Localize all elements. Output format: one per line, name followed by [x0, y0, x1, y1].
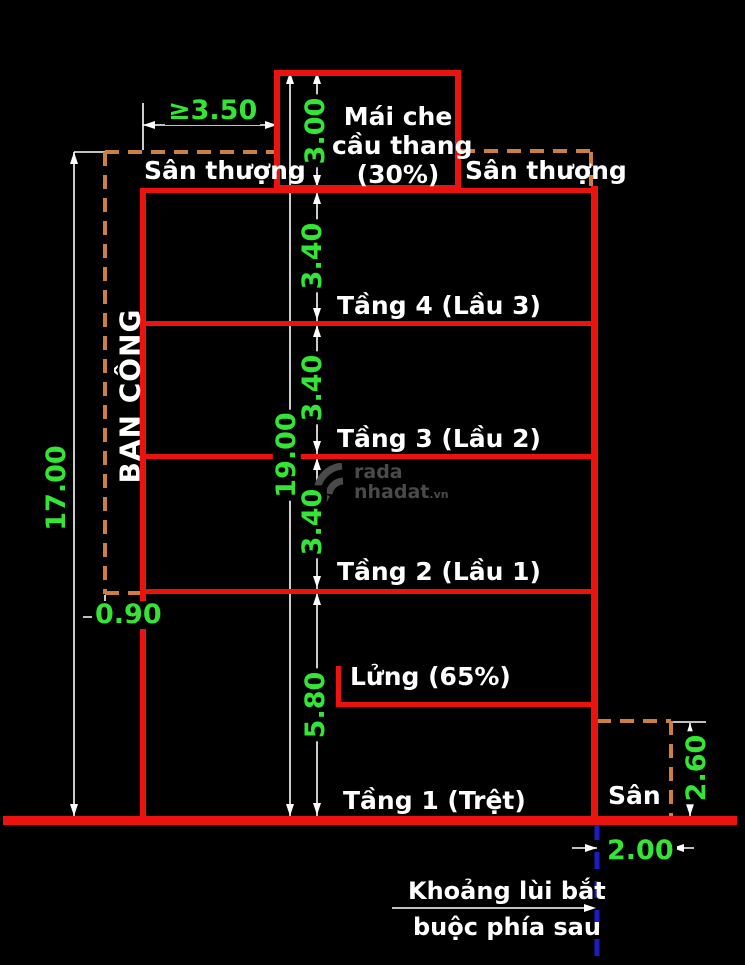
watermark-brand-top: rada	[354, 462, 449, 482]
dim-ground-floor-height: 5.80	[302, 669, 330, 742]
right-wall	[591, 186, 598, 818]
floor1-label: Tầng 1 (Trệt)	[343, 786, 526, 815]
mezzanine-line	[336, 702, 594, 707]
floor3-label: Tầng 3 (Lầu 2)	[337, 424, 541, 453]
dim-floor3-height: 3.40	[299, 352, 327, 425]
mezzanine-tick	[336, 666, 341, 707]
terrace-right-label: Sân thượng	[465, 156, 591, 185]
watermark-brand-bottom: nhadat.vn	[354, 482, 449, 505]
stair-roof-label: Mái che cầu thang (30%)	[332, 102, 464, 189]
dim-rear-setback-depth: 2.00	[604, 837, 677, 865]
floor4-line	[140, 321, 598, 326]
floor2-label: Tầng 2 (Lầu 1)	[337, 557, 541, 586]
floor4-label: Tầng 4 (Lầu 3)	[337, 291, 541, 320]
dim-rear-block-height: 2.60	[683, 732, 711, 805]
terrace-left-label: Sân thượng	[144, 156, 270, 185]
watermark: rada nhadat.vn	[312, 462, 449, 505]
watermark-tld: .vn	[429, 488, 448, 501]
yard-label: Sân	[608, 781, 661, 810]
rear-setback-note-line1: Khoảng lùi bắt	[408, 877, 588, 905]
dim-roof-height: 3.00	[302, 95, 330, 168]
dim-floor2-height: 3.40	[299, 486, 327, 559]
dim-floor4-height: 3.40	[299, 220, 327, 293]
balcony-label: BAN CÔNG	[114, 309, 147, 484]
dim-overall-height: 17.00	[43, 442, 71, 533]
watermark-text: rada nhadat.vn	[354, 462, 449, 505]
dim-balcony-depth: 0.90	[92, 601, 165, 629]
building-structure	[3, 186, 737, 825]
floor3-line	[140, 454, 598, 459]
section-drawing: rada nhadat.vn ≥3.50 3.00 Mái che cầu th…	[0, 0, 745, 965]
mezzanine-label: Lửng (65%)	[350, 662, 511, 691]
floor2-line	[140, 589, 598, 594]
dim-roof-min-width: ≥3.50	[165, 97, 260, 125]
rear-setback-note-line2: buộc phía sau	[413, 913, 593, 941]
left-wall	[140, 188, 146, 818]
dim-total-height-with-roof: 19.00	[273, 409, 301, 500]
ground-line	[3, 816, 737, 825]
